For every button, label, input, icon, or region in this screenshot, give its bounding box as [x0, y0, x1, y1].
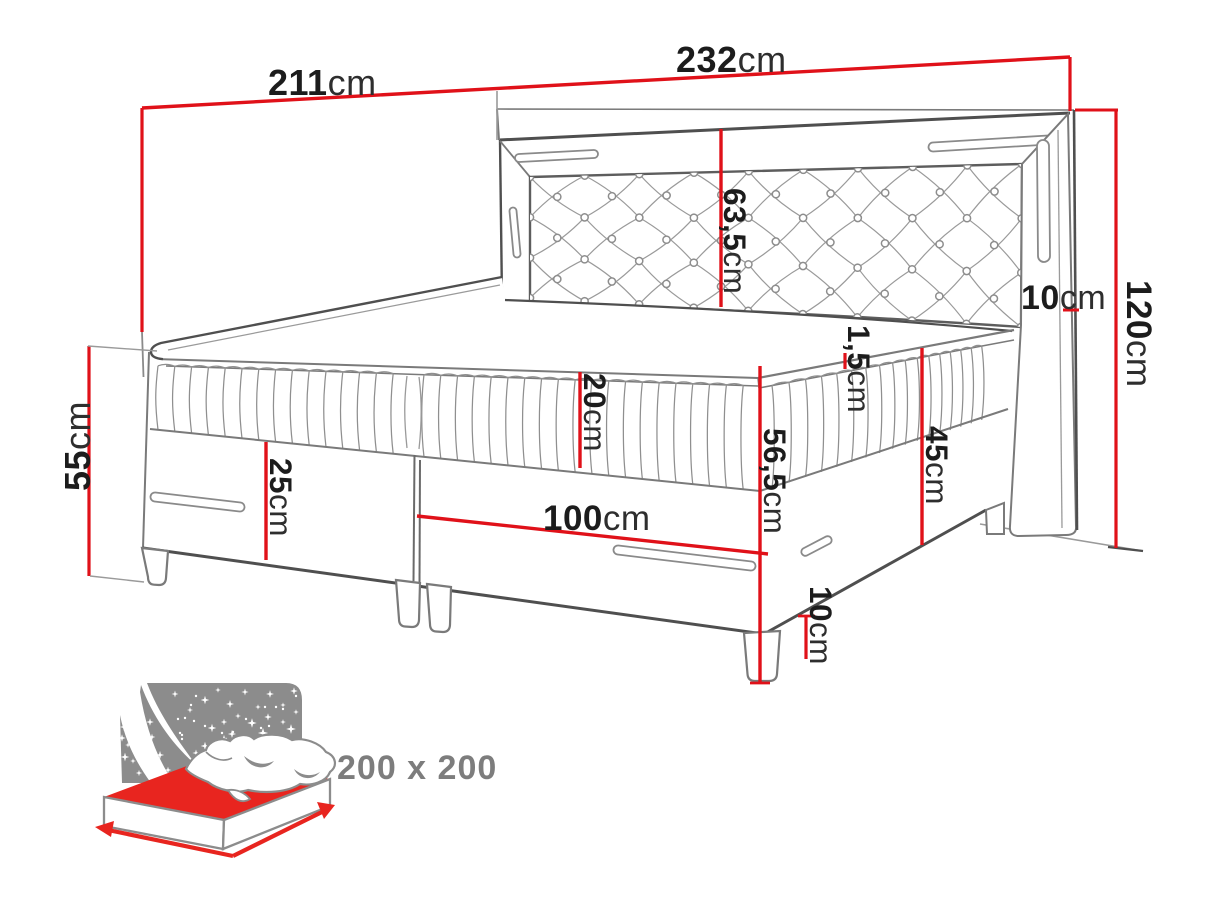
svg-text:232cm: 232cm: [676, 39, 787, 80]
svg-text:63,5cm: 63,5cm: [717, 188, 753, 294]
svg-text:55cm: 55cm: [57, 401, 98, 491]
svg-text:120cm: 120cm: [1119, 280, 1158, 388]
svg-text:25cm: 25cm: [263, 458, 299, 537]
svg-text:10cm: 10cm: [803, 586, 839, 665]
svg-text:10cm: 10cm: [1021, 279, 1106, 317]
svg-text:56,5cm: 56,5cm: [757, 428, 793, 534]
svg-text:45cm: 45cm: [919, 426, 955, 505]
svg-text:100cm: 100cm: [543, 499, 651, 538]
svg-text:200 x 200: 200 x 200: [337, 749, 497, 787]
svg-text:1,5cm: 1,5cm: [841, 325, 877, 413]
svg-text:20cm: 20cm: [577, 373, 613, 452]
svg-text:211cm: 211cm: [268, 62, 377, 103]
